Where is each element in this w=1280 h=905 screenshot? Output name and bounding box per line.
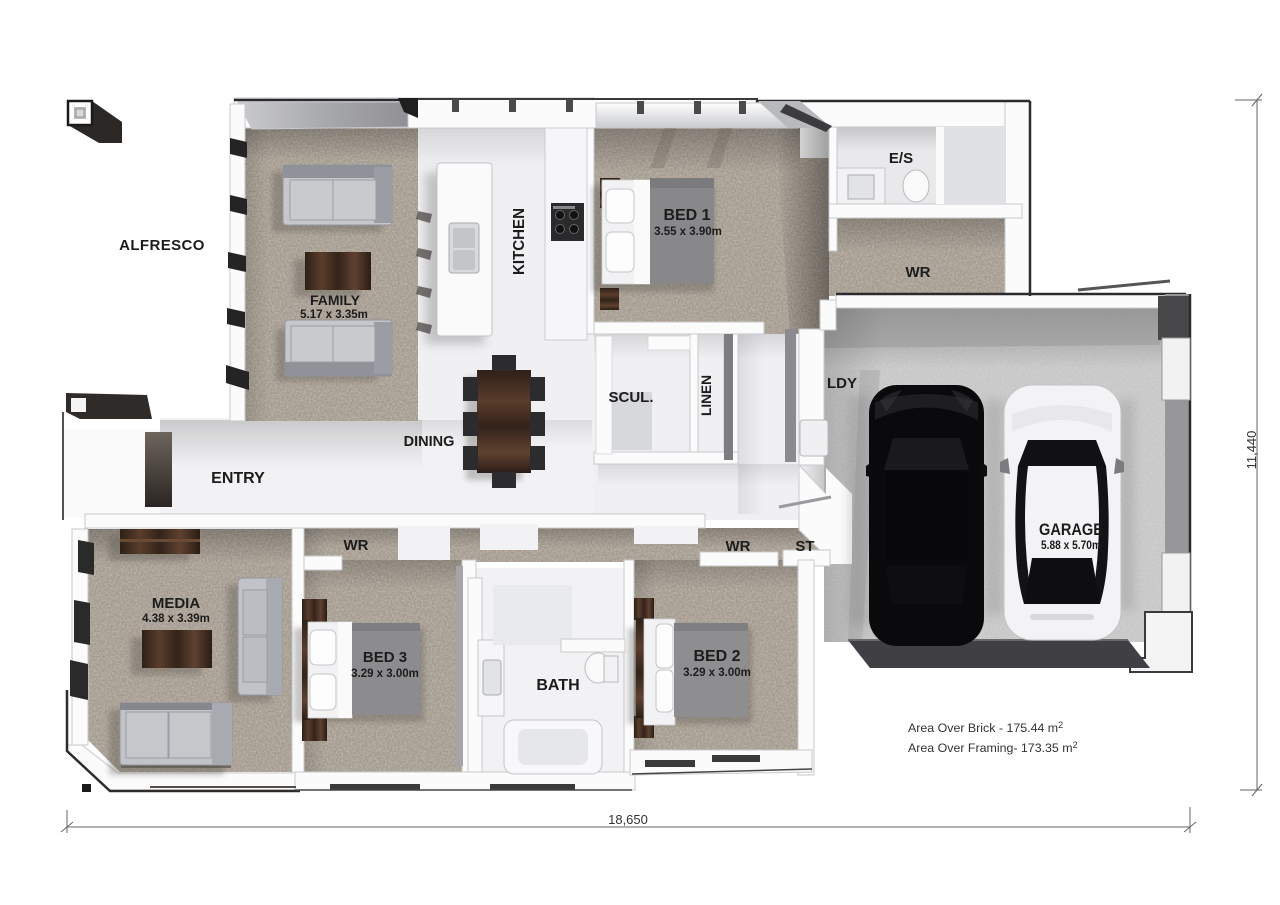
svg-text:WR: WR <box>726 538 751 555</box>
svg-text:BED 3: BED 3 <box>363 649 407 666</box>
svg-text:DINING: DINING <box>404 434 455 450</box>
svg-text:BATH: BATH <box>536 677 579 694</box>
svg-text:18,650: 18,650 <box>608 812 648 827</box>
svg-text:Area Over Framing- 173.35 m2: Area Over Framing- 173.35 m2 <box>908 740 1078 755</box>
svg-text:3.29 x 3.00m: 3.29 x 3.00m <box>683 667 751 679</box>
svg-text:SCUL.: SCUL. <box>609 389 654 406</box>
svg-text:MEDIA: MEDIA <box>152 595 201 612</box>
svg-text:ST: ST <box>795 538 814 555</box>
svg-text:BED 1: BED 1 <box>663 207 710 224</box>
svg-text:4.38 x 3.39m: 4.38 x 3.39m <box>142 613 210 625</box>
svg-text:FAMILY: FAMILY <box>310 292 361 308</box>
svg-text:LINEN: LINEN <box>698 375 714 416</box>
svg-text:ENTRY: ENTRY <box>211 470 265 487</box>
svg-text:WR: WR <box>344 537 369 554</box>
svg-text:Area Over Brick - 175.44 m2: Area Over Brick - 175.44 m2 <box>908 720 1063 735</box>
svg-text:WR: WR <box>906 264 931 281</box>
svg-text:E/S: E/S <box>889 150 913 167</box>
svg-text:3.55 x 3.90m: 3.55 x 3.90m <box>654 226 722 238</box>
svg-text:KITCHEN: KITCHEN <box>511 208 528 275</box>
svg-text:11,440: 11,440 <box>1244 431 1259 470</box>
svg-text:5.17 x 3.35m: 5.17 x 3.35m <box>300 309 368 321</box>
svg-text:5.88 x 5.70m: 5.88 x 5.70m <box>1041 540 1101 552</box>
svg-text:ALFRESCO: ALFRESCO <box>119 237 205 254</box>
svg-text:BED 2: BED 2 <box>693 648 740 665</box>
svg-text:GARAGE: GARAGE <box>1039 520 1103 539</box>
svg-text:LDY: LDY <box>827 375 857 392</box>
svg-text:3.29 x 3.00m: 3.29 x 3.00m <box>351 668 419 680</box>
